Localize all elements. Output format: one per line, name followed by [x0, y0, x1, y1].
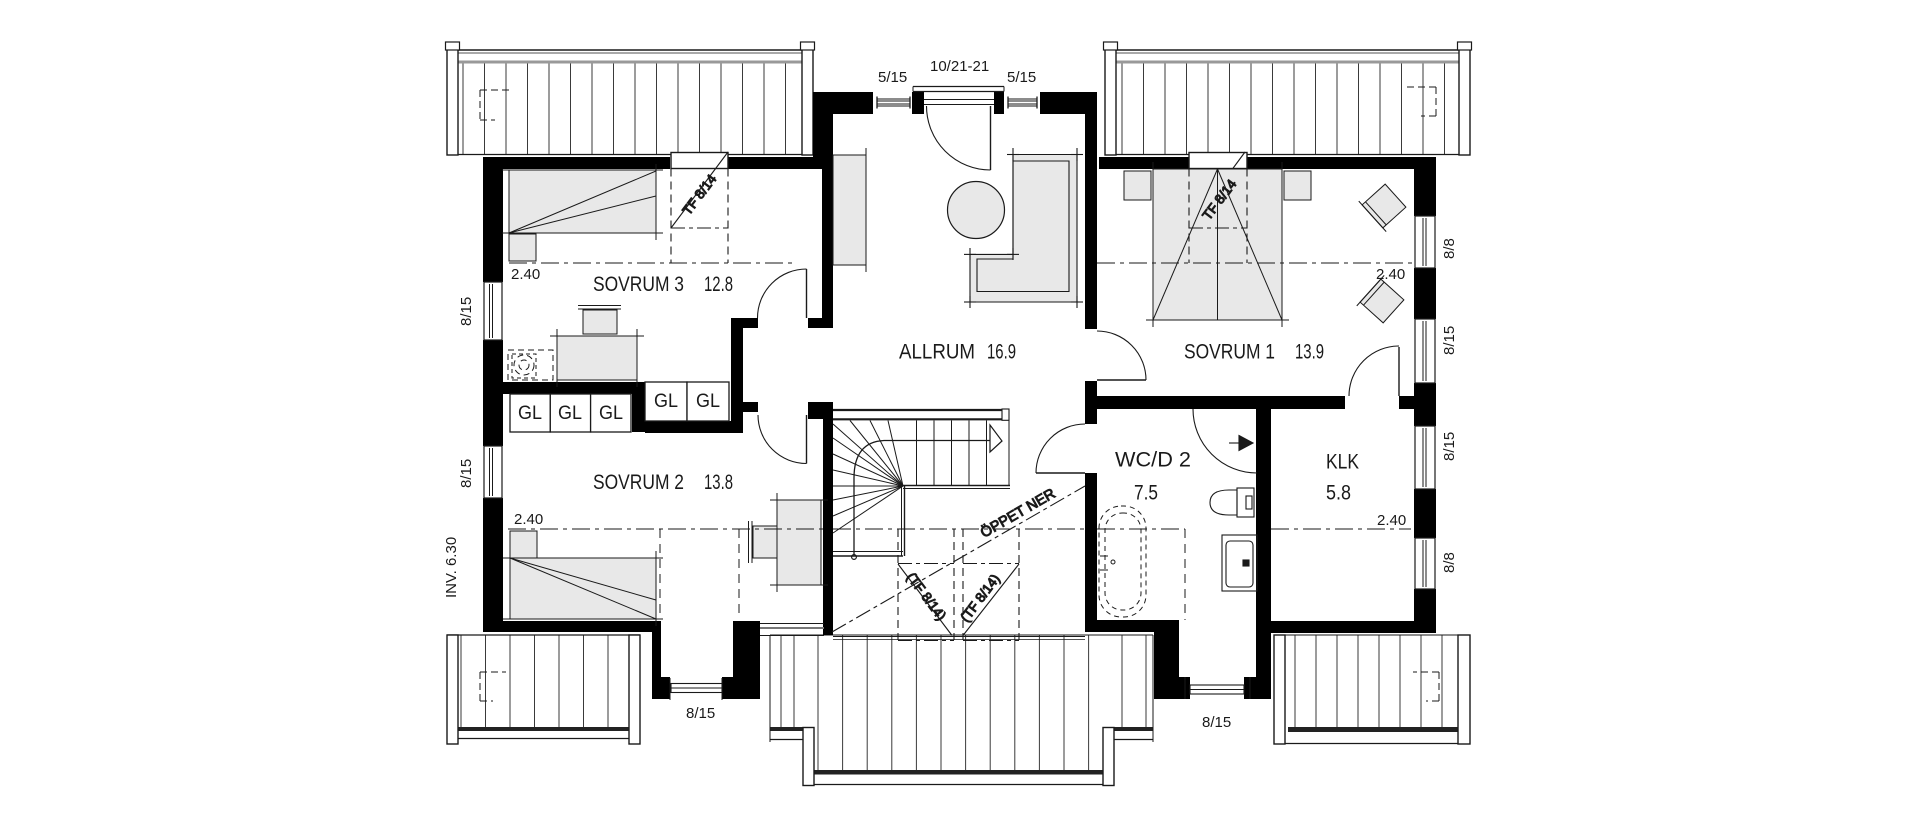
svg-text:SOVRUM 3: SOVRUM 3: [593, 273, 684, 296]
svg-text:2.40: 2.40: [514, 511, 543, 528]
svg-text:5.8: 5.8: [1326, 482, 1351, 505]
svg-text:10/21-21: 10/21-21: [930, 58, 989, 75]
svg-text:8/15: 8/15: [686, 705, 715, 722]
svg-text:13.9: 13.9: [1295, 341, 1324, 364]
svg-text:16.9: 16.9: [987, 341, 1016, 364]
svg-text:8/15: 8/15: [458, 459, 475, 488]
svg-text:SOVRUM 1: SOVRUM 1: [1184, 341, 1275, 364]
svg-text:8/15: 8/15: [1202, 714, 1231, 731]
svg-text:GL: GL: [599, 403, 623, 424]
svg-text:GL: GL: [558, 403, 582, 424]
svg-text:8/15: 8/15: [1441, 326, 1458, 355]
svg-text:12.8: 12.8: [704, 273, 733, 296]
svg-text:2.40: 2.40: [1377, 512, 1406, 529]
svg-text:8/15: 8/15: [1441, 432, 1458, 461]
svg-text:KLK: KLK: [1326, 451, 1359, 474]
svg-text:GL: GL: [518, 403, 542, 424]
svg-text:5/15: 5/15: [1007, 69, 1036, 86]
svg-text:GL: GL: [654, 391, 678, 412]
svg-text:7.5: 7.5: [1134, 482, 1158, 505]
svg-text:5/15: 5/15: [878, 69, 907, 86]
svg-text:GL: GL: [696, 391, 720, 412]
svg-text:SOVRUM 2: SOVRUM 2: [593, 471, 684, 494]
svg-text:2.40: 2.40: [1376, 266, 1405, 283]
svg-text:8/15: 8/15: [458, 297, 475, 326]
svg-text:8/8: 8/8: [1441, 238, 1458, 259]
svg-text:2.40: 2.40: [511, 266, 540, 283]
svg-text:8/8: 8/8: [1441, 552, 1458, 573]
svg-text:ALLRUM: ALLRUM: [899, 341, 975, 364]
svg-text:WC/D 2: WC/D 2: [1115, 449, 1191, 472]
svg-text:13.8: 13.8: [704, 471, 733, 494]
svg-text:INV. 6.30: INV. 6.30: [443, 537, 460, 598]
